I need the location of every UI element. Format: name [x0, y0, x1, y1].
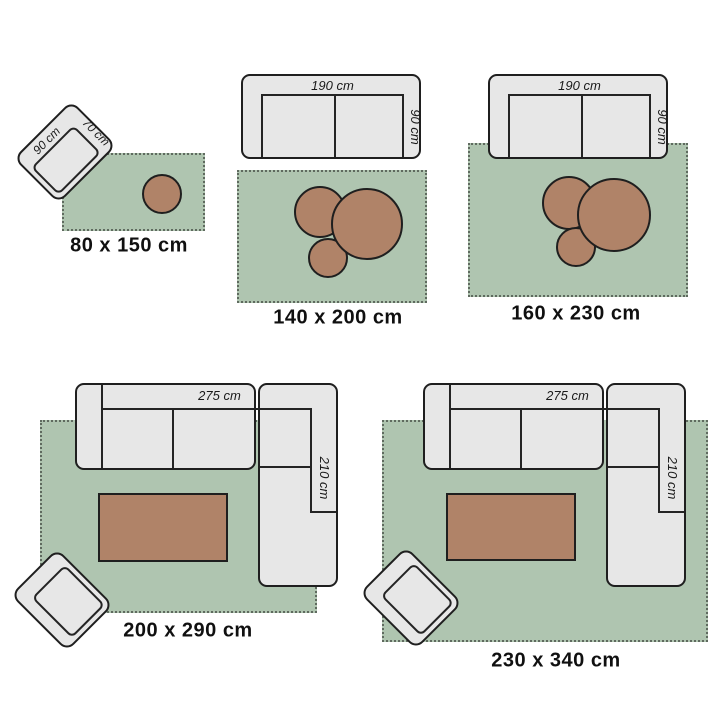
corner-sofa-armrest-line [101, 385, 103, 468]
scene-140x200: 190 cm 90 cm 140 x 200 cm [0, 0, 720, 720]
corner-sofa-chaise [258, 383, 338, 587]
scene-160x230: 190 cm 90 cm 160 x 230 cm [0, 0, 720, 720]
scene-200x290: 275 cm 210 cm 200 x 290 cm [0, 0, 720, 720]
corner-sofa-depth-label: 210 cm [664, 456, 680, 500]
corner-sofa-body [75, 383, 256, 470]
size-label-80x150: 80 x 150 cm [70, 235, 188, 258]
armchair [359, 546, 462, 649]
corner-sofa-chaise-step-line [310, 511, 336, 513]
sofa-2seat: 190 cm 90 cm [488, 74, 668, 159]
corner-sofa-seat-edge [608, 466, 660, 468]
sofa-seat-divider [334, 94, 336, 157]
sofa-depth-label: 90 cm [407, 105, 423, 149]
sofa-width-label: 190 cm [261, 78, 404, 94]
corner-sofa-body [423, 383, 604, 470]
sofa-seat [261, 94, 404, 157]
coffee-table [98, 493, 228, 562]
corner-sofa-backrest-line [451, 408, 660, 410]
side-table-small [308, 238, 348, 278]
rug-160x230 [468, 143, 688, 297]
sofa-seat [508, 94, 651, 157]
pouf [142, 174, 182, 214]
scene-80x150: 90 cm 70 cm 80 x 150 cm [0, 0, 720, 720]
side-table-large [331, 188, 403, 260]
corner-sofa-width-label: 275 cm [451, 388, 684, 404]
coffee-table [446, 493, 576, 561]
corner-sofa-chaise-step-line [658, 511, 684, 513]
rug-200x290 [40, 420, 317, 613]
armchair: 90 cm 70 cm [13, 100, 116, 203]
side-table-medium [542, 176, 596, 230]
corner-sofa-chaise-armrest-line [310, 408, 312, 513]
armchair-depth-label: 70 cm [75, 111, 117, 153]
armchair-width-label: 90 cm [20, 114, 74, 168]
rug-140x200 [237, 170, 427, 303]
corner-sofa-backrest-line [103, 408, 312, 410]
corner-sofa-armrest-line [449, 385, 451, 468]
sofa-2seat: 190 cm 90 cm [241, 74, 421, 159]
corner-sofa-chaise [606, 383, 686, 587]
corner-sofa-seat-edge [260, 466, 312, 468]
size-label-160x230: 160 x 230 cm [511, 303, 640, 326]
corner-sofa-chaise-armrest-line [658, 408, 660, 513]
sofa-depth-label: 90 cm [654, 105, 670, 149]
armchair [10, 548, 113, 651]
side-table-large [577, 178, 651, 252]
armchair-seat [32, 565, 106, 639]
corner-sofa-width-label: 275 cm [103, 388, 336, 404]
size-label-200x290: 200 x 290 cm [123, 620, 252, 643]
side-table-medium [294, 186, 346, 238]
size-label-230x340: 230 x 340 cm [491, 650, 620, 673]
rug-size-guide-canvas: 90 cm 70 cm 80 x 150 cm 190 cm 90 cm 140… [0, 0, 720, 720]
rug-230x340 [382, 420, 708, 642]
armchair-seat [31, 125, 101, 195]
corner-sofa-seat-divider [520, 410, 522, 468]
side-table-small [556, 227, 596, 267]
armchair-seat [381, 563, 455, 637]
rug-80x150 [62, 153, 205, 231]
corner-sofa-seat-divider [172, 410, 174, 468]
scene-230x340: 275 cm 210 cm 230 x 340 cm [0, 0, 720, 720]
corner-sofa-depth-label: 210 cm [316, 456, 332, 500]
sofa-seat-divider [581, 94, 583, 157]
sofa-width-label: 190 cm [508, 78, 651, 94]
size-label-140x200: 140 x 200 cm [273, 307, 402, 330]
